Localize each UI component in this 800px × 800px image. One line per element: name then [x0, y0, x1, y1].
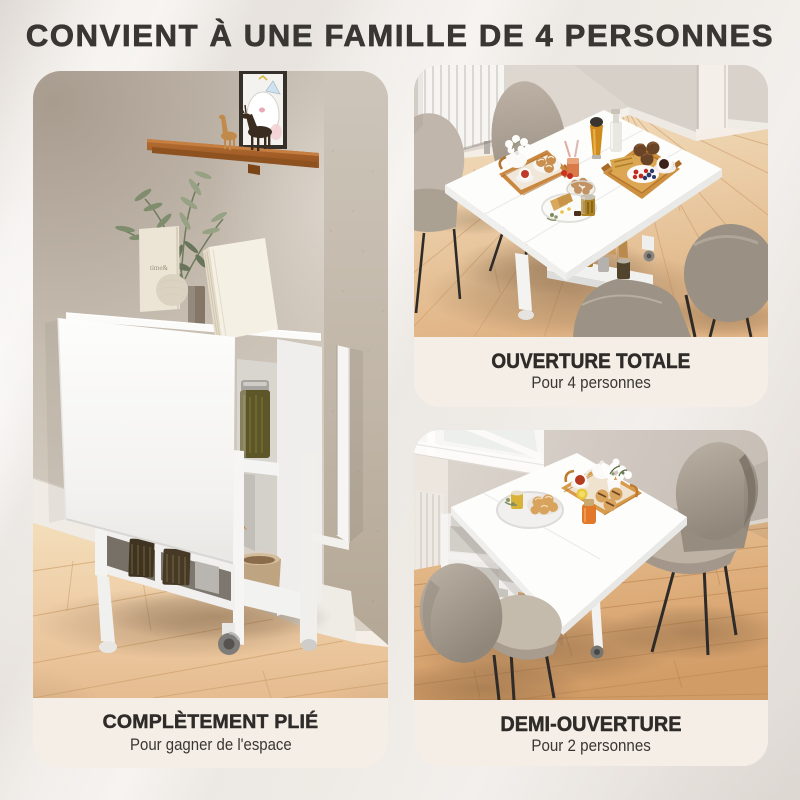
svg-text:time&: time&	[150, 264, 168, 272]
